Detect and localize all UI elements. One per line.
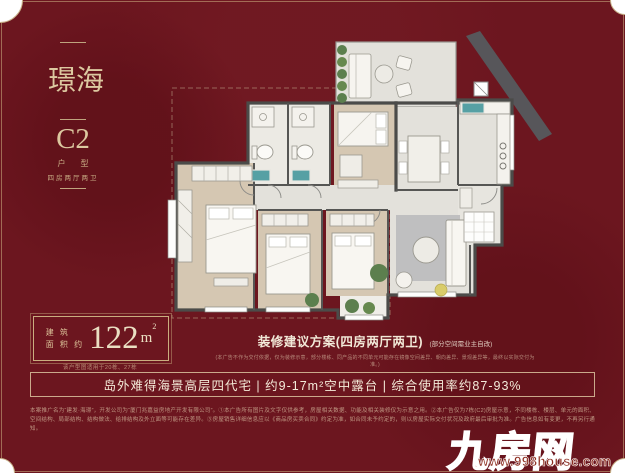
- plant-icon: [345, 299, 359, 313]
- plant-icon: [337, 57, 347, 67]
- renovation-title-note: (部分空间需业主自改): [429, 341, 492, 348]
- divider: [60, 188, 86, 189]
- pouf: [396, 272, 412, 288]
- plant-icon: [305, 293, 319, 307]
- wardrobe: [262, 214, 308, 226]
- wardrobe: [192, 166, 252, 181]
- bed-bench: [214, 278, 248, 286]
- entry-tile: [464, 212, 494, 242]
- project-name: 海璟: [45, 49, 101, 115]
- unit-type-desc: 四房两厅两卫: [40, 172, 106, 182]
- plant-icon: [370, 264, 388, 282]
- area-value: 122: [89, 322, 139, 355]
- plant-icon: [337, 45, 347, 55]
- renovation-disclaimer: (本广告不作为交付依据，仅为装修示意，部分楼栋、同产品的不同单元可能存在镜像空间…: [215, 354, 535, 368]
- shoe-cabinet: [460, 188, 472, 208]
- area-note: 该户型图适用于20栋、27栋: [20, 363, 180, 371]
- sink: [292, 170, 310, 181]
- renovation-title: 装修建议方案(四房两厅两卫): [258, 335, 423, 349]
- shower: [292, 107, 314, 127]
- dining-table: [408, 136, 440, 182]
- chair: [399, 141, 407, 153]
- area-label-line2: 面 积 约: [46, 339, 84, 351]
- toilet-icon: [297, 145, 313, 159]
- toilet-icon: [257, 145, 273, 159]
- chair: [441, 162, 449, 174]
- wardrobe: [330, 214, 374, 226]
- sofa: [446, 220, 466, 286]
- chair: [441, 141, 449, 153]
- cabinet: [340, 155, 362, 177]
- hallway-floor: [254, 185, 400, 210]
- area-label: 建 筑 面 积 约: [46, 327, 84, 350]
- unit-info-panel: 海璟 C2 户型 四房两厅两卫: [40, 42, 106, 189]
- sink: [462, 103, 484, 113]
- selling-points-banner: 岛外难得海景高层四代宅 | 约9-17m²空中露台 | 综合使用率约87-93%: [30, 372, 595, 397]
- coffee-table: [413, 237, 439, 263]
- outdoor-sofa: [349, 54, 371, 98]
- outdoor-table: [375, 65, 393, 83]
- plant-icon: [337, 93, 347, 103]
- area-unit-sup: 2: [152, 322, 156, 331]
- sink: [252, 170, 270, 181]
- plant-icon: [337, 81, 347, 91]
- shower: [252, 107, 274, 127]
- area-box: 建 筑 面 积 约 122 m2: [33, 316, 169, 361]
- chair: [399, 162, 407, 174]
- renovation-caption: 装修建议方案(四房两厅两卫) (部分空间需业主自改) (本广告不作为交付依据，仅…: [215, 331, 535, 368]
- unit-code: C2: [40, 125, 106, 154]
- site-url: www.998house.com: [478, 454, 611, 469]
- advert-canvas: 海璟 C2 户型 四房两厅两卫 建 筑 面 积 约 122 m2 该户型图适用于…: [0, 0, 625, 473]
- floor-lamp: [435, 284, 447, 296]
- wardrobe: [338, 180, 378, 188]
- plant-icon: [363, 302, 375, 314]
- area-label-line1: 建 筑: [46, 327, 84, 339]
- divider: [60, 42, 86, 43]
- unit-type-label: 户型: [40, 158, 106, 169]
- selling-points-text: 岛外难得海景高层四代宅 | 约9-17m²空中露台 | 综合使用率约87-93%: [103, 375, 521, 394]
- divider: [60, 119, 86, 120]
- area-unit: m2: [141, 330, 157, 347]
- plant-icon: [337, 69, 347, 79]
